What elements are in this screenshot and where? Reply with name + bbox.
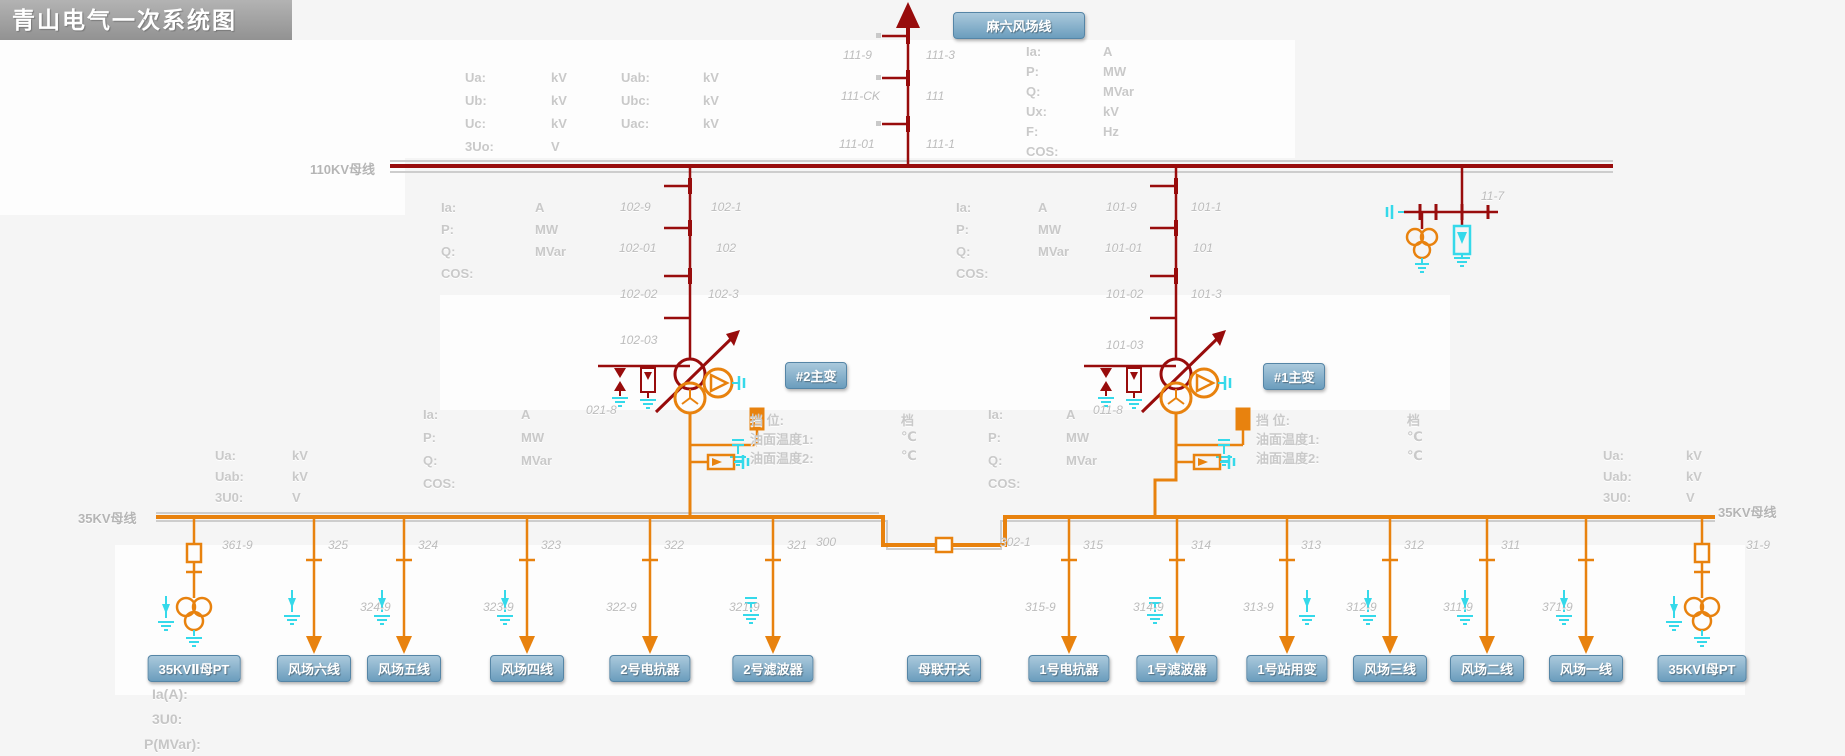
- line-111-bay[interactable]: [876, 2, 920, 166]
- feeder-arrow-icon: [1279, 636, 1295, 654]
- switch-label: 101-3: [1191, 287, 1222, 301]
- switch-label: 101-1: [1191, 200, 1222, 214]
- measurement-unit: kV: [551, 116, 567, 131]
- feeder-disconnector-label: 314-9: [1133, 600, 1164, 614]
- feeder-disconnector-label: 322-9: [606, 600, 637, 614]
- feeder-arrow-icon: [1169, 636, 1185, 654]
- measurement-unit: MVar: [1103, 84, 1134, 99]
- measurement-unit: kV: [703, 93, 719, 108]
- measurement-unit: MVar: [1038, 244, 1069, 259]
- measurement-label: 挡 位:: [750, 410, 784, 429]
- arrester-icon: [1100, 381, 1112, 391]
- arrester-arrow-icon: [1303, 598, 1311, 608]
- feeder-breaker-label: 324: [418, 538, 438, 552]
- feeder-arrow-icon: [1382, 636, 1398, 654]
- feeder-disconnector-label: 311-9: [1443, 600, 1473, 614]
- measurement-unit: MW: [1038, 222, 1061, 237]
- measurement-unit: MW: [1103, 64, 1126, 79]
- arrester-arrow-icon: [162, 604, 170, 614]
- page-title: 青山电气一次系统图: [0, 0, 292, 40]
- feeder-badge[interactable]: 2号滤波器: [732, 655, 813, 682]
- measurement-unit: kV: [1686, 469, 1702, 484]
- switch-label: 102-03: [620, 333, 657, 347]
- measurement-label: Ux:: [1026, 104, 1047, 119]
- measurement-label: P:: [1026, 64, 1039, 79]
- feeder-badge[interactable]: 35KVⅡ母PT: [148, 655, 241, 682]
- switch-label: 102-02: [620, 287, 657, 301]
- measurement-label: Ua:: [465, 70, 486, 85]
- switch-label: 111-CK: [841, 89, 880, 103]
- measurement-unit: kV: [551, 70, 567, 85]
- measurement-unit: ℃: [1407, 429, 1423, 445]
- hv-pt-bay[interactable]: [1387, 166, 1498, 272]
- feeder-breaker-label: 325: [328, 538, 348, 552]
- switch-label: 111-3: [926, 48, 955, 62]
- measurement-label: P:: [441, 222, 454, 237]
- mv-bus-label-right: 35KV母线: [1718, 502, 1777, 521]
- feeder-badge[interactable]: 2号电抗器: [609, 655, 690, 682]
- measurement-unit: kV: [1686, 448, 1702, 463]
- feeder-badge[interactable]: 35KVⅠ母PT: [1658, 655, 1747, 682]
- measurement-label: Ua:: [1603, 448, 1624, 463]
- motor-box-icon: [1236, 408, 1250, 430]
- measurement-unit: MVar: [535, 244, 566, 259]
- measurement-unit: V: [1686, 490, 1695, 505]
- feeder-badge[interactable]: 1号滤波器: [1136, 655, 1217, 682]
- feeder-breaker-label: 321: [787, 538, 807, 552]
- breaker-chain-101[interactable]: [1150, 166, 1176, 358]
- feeder-badge[interactable]: 风场五线: [367, 655, 441, 682]
- measurement-label: Q:: [956, 244, 970, 259]
- arrow-box-arrow-icon: [712, 458, 722, 466]
- feeder-arrow-icon: [396, 636, 412, 654]
- measurement-unit: Hz: [1103, 124, 1119, 139]
- measurement-label: 油面温度2:: [750, 448, 814, 467]
- switch-label: 111-1: [926, 137, 955, 151]
- measurement-label: Uc:: [465, 116, 486, 131]
- feeder-breaker-label: 31-9: [1746, 538, 1770, 552]
- corner-measure-3u0: 3U0:: [152, 711, 182, 727]
- measurement-label: Q:: [988, 453, 1002, 468]
- feeder-breaker-label: 312: [1404, 538, 1424, 552]
- feeder-badge[interactable]: 1号站用变: [1246, 655, 1327, 682]
- arrester-arrow-icon: [1457, 232, 1467, 244]
- measurement-unit: MW: [521, 430, 544, 445]
- feeder-disconnector-label: 315-9: [1025, 600, 1056, 614]
- line-name-badge[interactable]: 麻六风场线: [953, 12, 1085, 39]
- feeder-arrow-icon: [1479, 636, 1495, 654]
- feeder-disconnector-label: 371-9: [1542, 600, 1573, 614]
- corner-measure-p: P(MVar):: [144, 736, 201, 752]
- measurement-label: 油面温度1:: [1256, 429, 1320, 448]
- measurement-unit: A: [1103, 44, 1112, 59]
- measurement-unit: MVar: [1066, 453, 1097, 468]
- arrester-arrow-icon: [644, 372, 652, 380]
- feeder-disconnector-label: 313-9: [1243, 600, 1274, 614]
- feeder-disconnector-label: 323-9: [483, 600, 514, 614]
- switch-label: 102-1: [711, 200, 742, 214]
- measurement-unit: kV: [703, 70, 719, 85]
- feeder-arrow-icon: [519, 636, 535, 654]
- arrester-icon: [614, 368, 626, 378]
- measurement-label: COS:: [956, 266, 989, 281]
- measurement-label: P:: [988, 430, 1001, 445]
- hv-bus-label: 110KV母线: [310, 159, 375, 178]
- switch-label: 011-8: [1093, 403, 1123, 417]
- measurement-unit: kV: [1103, 104, 1119, 119]
- pt-winding-icon: [185, 612, 203, 630]
- feeder-arrow-icon: [642, 636, 658, 654]
- measurement-unit: ℃: [901, 429, 917, 445]
- feeder-arrow-icon: [1061, 636, 1077, 654]
- arrester-arrow-icon: [288, 598, 296, 608]
- measurement-unit: 档: [901, 410, 914, 429]
- measurement-label: 油面温度2:: [1256, 448, 1320, 467]
- measurement-unit: A: [1038, 200, 1047, 215]
- measurement-label: Q:: [423, 453, 437, 468]
- feeder-badge[interactable]: 风场六线: [277, 655, 351, 682]
- switch-label: 101-9: [1106, 200, 1137, 214]
- measurement-label: Uab:: [1603, 469, 1632, 484]
- switch-label: 101-01: [1105, 241, 1142, 255]
- feeder-disconnector-label: 312-9: [1346, 600, 1377, 614]
- measurement-label: 3U0:: [215, 490, 243, 505]
- switch-label: 101: [1193, 241, 1213, 255]
- arrester-arrow-icon: [1670, 604, 1678, 614]
- measurement-label: 挡 位:: [1256, 410, 1290, 429]
- measurement-label: Uac:: [621, 116, 649, 131]
- feeder-breaker-label: 313: [1301, 538, 1321, 552]
- pt-winding-icon: [1414, 242, 1430, 258]
- measurement-unit: kV: [703, 116, 719, 131]
- feeder-breaker-label: 315: [1083, 538, 1103, 552]
- bus-tie-breaker-icon[interactable]: [936, 538, 952, 552]
- measurement-unit: 档: [1407, 410, 1420, 429]
- switch-label: 111: [926, 89, 944, 103]
- measurement-unit: V: [292, 490, 301, 505]
- measurement-label: COS:: [423, 476, 456, 491]
- feeder-disconnector-label: 324-9: [360, 600, 391, 614]
- switch-label: 11-7: [1481, 189, 1504, 203]
- ground-icon: [1454, 254, 1470, 266]
- measurement-label: Ia:: [988, 407, 1003, 422]
- fan-blade-icon: [711, 375, 727, 391]
- feeder-breaker-label: 361-9: [222, 538, 253, 552]
- switch-label: 101-02: [1106, 287, 1143, 301]
- pt-winding-icon: [1693, 612, 1711, 630]
- measurement-label: Ua:: [215, 448, 236, 463]
- transformer-1-badge[interactable]: #1主变: [1263, 363, 1325, 390]
- measurement-label: 油面温度1:: [750, 429, 814, 448]
- measurement-unit: MVar: [521, 453, 552, 468]
- mv-lead: [1155, 413, 1176, 517]
- measurement-label: P:: [956, 222, 969, 237]
- pt-breaker-icon: [1695, 544, 1709, 562]
- measurement-unit: kV: [292, 448, 308, 463]
- switch-label: 101-03: [1106, 338, 1143, 352]
- feeder-badge[interactable]: 风场一线: [1549, 655, 1623, 682]
- feeder-arrow-icon: [765, 636, 781, 654]
- measurement-label: P:: [423, 430, 436, 445]
- measurement-label: Ia:: [423, 407, 438, 422]
- switch-label: 102: [716, 241, 736, 255]
- line-arrow-icon: [896, 2, 920, 28]
- measurement-label: COS:: [988, 476, 1021, 491]
- mv-bus-label-left: 35KV母线: [78, 508, 137, 527]
- measurement-unit: MW: [1066, 430, 1089, 445]
- feeder-badge[interactable]: 母联开关: [907, 655, 981, 682]
- measurement-unit: V: [551, 139, 560, 154]
- measurement-label: Ubc:: [621, 93, 650, 108]
- feeder-breaker-label: 322: [664, 538, 684, 552]
- arrester-icon: [1100, 368, 1112, 378]
- feeder-breaker-label: 311: [1501, 538, 1520, 552]
- measurement-label: COS:: [441, 266, 474, 281]
- transformer-2-badge[interactable]: #2主变: [785, 362, 847, 389]
- switch-label: 302-1: [1000, 535, 1031, 549]
- measurement-label: Ia:: [1026, 44, 1041, 59]
- feeder-disconnector-label: 321-9: [729, 600, 760, 614]
- feeder-badge[interactable]: 1号电抗器: [1028, 655, 1109, 682]
- measurement-unit: ℃: [901, 448, 917, 464]
- switch-label: 021-8: [586, 403, 617, 417]
- arrester-arrow-icon: [1130, 372, 1138, 380]
- feeder-breaker-label: 323: [541, 538, 561, 552]
- switch-label: 102-9: [620, 200, 651, 214]
- measurement-unit: MW: [535, 222, 558, 237]
- measurement-label: Ia:: [441, 200, 456, 215]
- measurement-label: F:: [1026, 124, 1038, 139]
- feeder-breaker-label: 314: [1191, 538, 1211, 552]
- feeder-arrow-icon: [1578, 636, 1594, 654]
- breaker-chain-102[interactable]: [664, 166, 690, 358]
- switch-label: 102-3: [708, 287, 739, 301]
- oneline-diagram-canvas: [0, 0, 1845, 756]
- switch-label: 102-01: [619, 241, 656, 255]
- measurement-unit: A: [521, 407, 530, 422]
- switch-label: 300: [816, 535, 836, 549]
- ground-icon: [1415, 258, 1429, 272]
- feeder-arrow-icon: [306, 636, 322, 654]
- measurement-unit: kV: [551, 93, 567, 108]
- measurement-label: COS:: [1026, 144, 1059, 159]
- measurement-label: 3U0:: [1603, 490, 1631, 505]
- measurement-unit: A: [1066, 407, 1075, 422]
- arrow-box-arrow-icon: [1198, 458, 1208, 466]
- switch-label: 111-01: [839, 137, 875, 151]
- measurement-label: Uab:: [215, 469, 244, 484]
- fan-blade-icon: [1197, 375, 1213, 391]
- measurement-label: Q:: [441, 244, 455, 259]
- measurement-label: Uab:: [621, 70, 650, 85]
- feeder-badge[interactable]: 风场三线: [1353, 655, 1427, 682]
- measurement-unit: A: [535, 200, 544, 215]
- measurement-label: 3Uo:: [465, 139, 494, 154]
- measurement-unit: ℃: [1407, 448, 1423, 464]
- measurement-unit: kV: [292, 469, 308, 484]
- switch-label: 111-9: [843, 48, 872, 62]
- pt-breaker-icon: [187, 544, 201, 562]
- feeder-badge[interactable]: 风场二线: [1450, 655, 1524, 682]
- measurement-label: Q:: [1026, 84, 1040, 99]
- measurement-label: Ia:: [956, 200, 971, 215]
- arrester-icon: [614, 381, 626, 391]
- feeder-badge[interactable]: 风场四线: [490, 655, 564, 682]
- measurement-label: Ub:: [465, 93, 487, 108]
- corner-measure-ia: Ia(A):: [152, 686, 188, 702]
